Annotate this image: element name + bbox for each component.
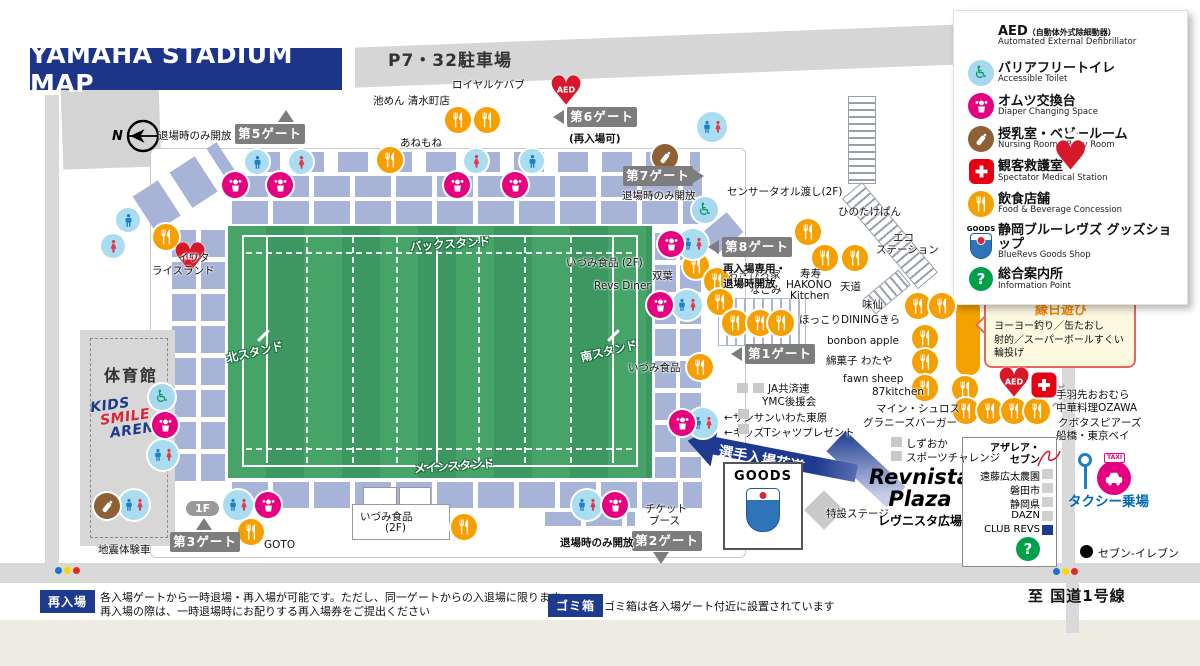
sponsor-square [1042, 497, 1053, 507]
toilet-female-icon [101, 234, 125, 258]
legend-text: 飲食店舗Food & Beverage Concession [998, 193, 1122, 216]
taxi-sign-pole-icon [1084, 463, 1087, 489]
trash-badge: ゴミ箱 [548, 594, 603, 617]
sponsor-row: CLUB REVS [984, 524, 1040, 535]
map-label: しずおか [906, 436, 948, 451]
sponsor-row: 磐田市 [1010, 482, 1040, 497]
food-icon [445, 107, 471, 133]
legend-icon-cell: GOODS [964, 225, 998, 259]
leader-square [737, 383, 748, 393]
legend-en-label: Information Point [998, 282, 1071, 291]
gate-label: 第1ゲート [745, 344, 815, 364]
toilet-icon [572, 490, 602, 520]
signal-dot-blue [55, 567, 62, 574]
ramp-diagonal [842, 182, 938, 289]
diaper-changing-icon [267, 172, 293, 198]
food-icon [912, 349, 938, 375]
ennichi-line: ヨーヨー釣り／缶たおし [994, 320, 1128, 334]
10m-line [352, 237, 354, 463]
gate-arrow-icon [731, 347, 742, 361]
road-left [45, 95, 59, 567]
diaper-changing-icon [669, 410, 695, 436]
5m-line-bottom [246, 448, 632, 450]
nursing-room-icon [968, 126, 994, 152]
legend-text: AED（自動体外式除細動器）Automated External Defibri… [998, 25, 1136, 48]
reentry-note-line2: 再入場の際は、一時退場時にお配りする再入場券をご提出ください [100, 603, 430, 619]
map-label: スポーツチャレンジ [906, 450, 1000, 465]
gate-note: 退場時のみ開放 [158, 128, 232, 143]
map-label: 池めん 清水町店 [373, 93, 450, 108]
food-icon [905, 293, 931, 319]
gate-arrow-icon [196, 518, 212, 530]
22m-line [306, 237, 308, 463]
map-label: bonbon apple [827, 335, 899, 347]
map-label: マイン・シュロス [876, 401, 960, 416]
ennichi-line: 射的／スーパーボールすくい [994, 334, 1128, 348]
signal-dot-blue [1053, 568, 1060, 575]
legend-jp-label: 静岡ブルーレヴズ グッズショップ [998, 224, 1179, 251]
toilet-male-icon [520, 149, 544, 173]
accessible-toilet-icon: ♿ [968, 60, 994, 86]
bottom-strip [0, 620, 1200, 666]
information-point-icon: ? [969, 267, 993, 291]
leader-square [891, 451, 902, 461]
legend-text: 静岡ブルーレヴズ グッズショップBlueRevs Goods Shop [998, 224, 1179, 260]
map-label: ステーション [876, 242, 939, 257]
legend-text: バリアフリートイレAccessible Toilet [998, 62, 1115, 85]
gate-label: 第8ゲート [722, 237, 792, 257]
diaper-changing-icon [658, 231, 684, 257]
gate-label: 第5ゲート [235, 124, 305, 144]
food-icon [687, 354, 713, 380]
sponsor-square [1042, 483, 1053, 493]
10m-line [478, 237, 480, 463]
leader-square [753, 383, 764, 393]
legend-jp-label: AED（自動体外式除細動器） [998, 25, 1136, 39]
map-label: センサータオル渡し(2F) [727, 184, 842, 199]
legend-en-label: BlueRevs Goods Shop [998, 251, 1179, 260]
10m-line [524, 237, 526, 463]
aed-icon: ♥AED [996, 368, 1032, 402]
legend-en-label: Accessible Toilet [998, 75, 1115, 84]
toilet-icon [119, 490, 149, 520]
sponsor-square [1042, 525, 1053, 535]
diaper-changing-icon [222, 172, 248, 198]
taxi-stand-label: タクシー乗場 [1068, 490, 1149, 510]
gate-arrow-icon [278, 110, 294, 122]
legend-jp-label: バリアフリートイレ [998, 62, 1115, 76]
nursing-room-icon [94, 493, 120, 519]
medical-station-icon [969, 159, 994, 184]
diaper-changing-icon [502, 172, 528, 198]
map-label: (2F) [385, 522, 406, 534]
food-icon [842, 245, 868, 271]
toilet-female-icon [464, 149, 488, 173]
10m-line [396, 237, 398, 463]
food-icon [238, 519, 264, 545]
legend-en-label: Diaper Changing Space [998, 108, 1098, 117]
halfway-line [436, 237, 438, 463]
map-label: 綿菓子 わたや [826, 353, 892, 368]
22m-line [570, 237, 572, 463]
signal-dot-yellow [1062, 568, 1069, 575]
toilet-male-icon [245, 150, 269, 174]
floor-pill: 1F [186, 501, 219, 516]
legend-icon-cell: ? [964, 267, 998, 291]
sponsor-row: DAZN [1011, 510, 1040, 521]
food-icon [968, 191, 994, 217]
diaper-changing-icon [152, 412, 178, 438]
leader-square [738, 424, 749, 434]
map-label: グラニーズバーガー [863, 415, 957, 430]
map-label: ほっこりDININGきら [799, 312, 900, 327]
map-label: ブース [649, 513, 680, 528]
map-label: ライスランド [152, 263, 215, 278]
gate-note: 再入場専用・ 退場時開放 [723, 261, 786, 291]
seats-top-row3 [232, 201, 702, 224]
aed-icon: ♥AED [964, 19, 998, 53]
map-label: ロイヤルケバブ [452, 77, 525, 92]
map-label: 天道 [840, 279, 861, 294]
toilet-male-icon [116, 208, 140, 232]
goods-shop-icon: GOODS [967, 225, 996, 259]
map-label: Revs Diner [594, 280, 651, 292]
food-icon [474, 107, 500, 133]
leader-square [738, 409, 749, 419]
map-label: 船橋・東京ベイ [1056, 428, 1130, 443]
gym-label: 体育館 [104, 362, 158, 386]
stairs-topright [848, 96, 876, 184]
legend-jp-label: オムツ交換台 [998, 95, 1098, 109]
seats-bottom-row [232, 482, 702, 508]
goods-shop: GOODS [723, 462, 803, 550]
map-label: 双葉 [652, 268, 673, 283]
legend-item: ♿バリアフリートイレAccessible Toilet [964, 60, 1179, 86]
ennichi-stalls-bar [956, 299, 980, 375]
map-label: 87kitchen [872, 386, 924, 398]
route-1-label: 至 国道1号線 [1028, 585, 1126, 606]
legend-icon-cell [964, 126, 998, 152]
gate-label: 第6ゲート [567, 107, 637, 127]
gate-arrow-icon [708, 240, 719, 254]
diaper-changing-icon [968, 93, 994, 119]
map-label: GOTO [264, 539, 295, 551]
toilet-icon [223, 490, 253, 520]
signal-dot-red [73, 567, 80, 574]
legend-en-label: Food & Beverage Concession [998, 206, 1122, 215]
legend-icon-cell [964, 93, 998, 119]
food-icon [912, 325, 938, 351]
gate-note: (再入場可) [569, 131, 621, 146]
accessible-toilet-icon: ♿ [149, 384, 175, 410]
food-icon [722, 310, 748, 336]
map-label: いづみ食品 [628, 360, 681, 375]
diaper-changing-icon [647, 292, 673, 318]
legend-icon-cell: ♥AED [964, 19, 998, 53]
gate-note: 退場時のみ開放 [560, 535, 634, 550]
map-label: 中華料理OZAWA [1056, 400, 1137, 415]
map-label: 地震体験車 [98, 542, 151, 557]
legend-jp-label: 飲食店舗 [998, 193, 1122, 207]
seven-eleven-label: セブン-イレブン [1098, 545, 1179, 561]
red-scribble-icon [1036, 446, 1062, 470]
toilet-icon [697, 112, 727, 142]
gate-arrow-icon [693, 169, 704, 183]
map-label: YMC後援会 [762, 394, 816, 409]
sponsor-square [1042, 469, 1053, 479]
aed-icon: ♥AED [548, 76, 584, 110]
leader-square [891, 437, 902, 447]
map-label: Kitchen [790, 290, 829, 302]
map-label: ひのたけぱん [838, 204, 901, 219]
food-icon [795, 219, 821, 245]
gate-arrow-icon [553, 110, 564, 124]
legend-card: ♥AEDAED（自動体外式除細動器）Automated External Def… [953, 10, 1188, 305]
compass: N [112, 118, 161, 154]
legend-item: ♥AEDAED（自動体外式除細動器）Automated External Def… [964, 19, 1179, 53]
parking-label: P7・32駐車場 [388, 46, 512, 71]
legend-jp-label: 総合案内所 [998, 268, 1071, 282]
legend-icon-cell [964, 191, 998, 217]
legend-text: オムツ交換台Diaper Changing Space [998, 95, 1098, 118]
map-label: いづみ食品 (2F) [566, 255, 643, 270]
gate-label: 第2ゲート [632, 531, 702, 551]
toilet-female-icon [289, 150, 313, 174]
reentry-badge: 再入場 [40, 590, 95, 613]
map-title: YAMAHA STADIUM MAP [30, 48, 342, 90]
north-arrow-icon [125, 118, 161, 154]
gate-arrow-icon [653, 552, 669, 564]
toilet-icon [148, 440, 178, 470]
legend-text: 総合案内所Information Point [998, 268, 1071, 291]
legend-item: ?総合案内所Information Point [964, 267, 1179, 291]
signal-dot-red [1071, 568, 1078, 575]
legend-item: オムツ交換台Diaper Changing Space [964, 93, 1179, 119]
legend-item: 飲食店舗Food & Beverage Concession [964, 191, 1179, 217]
trash-note: ゴミ箱は各入場ゲート付近に設置されています [604, 598, 835, 614]
legend-item: GOODS静岡ブルーレヴズ グッズショップBlueRevs Goods Shop [964, 224, 1179, 260]
diaper-changing-icon [602, 492, 628, 518]
medical-station-icon [1032, 373, 1057, 398]
sponsor-row: 静岡県 [1010, 496, 1040, 511]
compass-n-label: N [112, 129, 123, 144]
ennichi-line: 輪投げ [994, 347, 1128, 361]
diaper-changing-icon [255, 492, 281, 518]
sponsor-square [1042, 511, 1053, 521]
signal-dot-yellow [64, 567, 71, 574]
legend-icon-cell [964, 159, 998, 184]
stadium-map: P7・32駐車場 体育館 KIDS SMILE ARENA [0, 0, 1200, 666]
diaper-changing-icon [444, 172, 470, 198]
map-label: 味仙 [862, 297, 883, 312]
map-label: あねもね [400, 135, 442, 150]
taxi-flag-label: TAXI [1104, 453, 1125, 463]
toilet-icon [672, 290, 702, 320]
food-icon [377, 147, 403, 173]
gate-label: 第7ゲート [623, 166, 693, 186]
sponsor-row: 遠藤広太農園 [980, 468, 1040, 483]
goods-shop-label: GOODS [734, 469, 792, 484]
legend-en-label: Automated External Defibrillator [998, 38, 1136, 47]
bluerevs-shield-icon [746, 488, 780, 532]
information-point-icon: ? [1016, 537, 1040, 561]
map-label: fawn sheep [843, 373, 903, 385]
gate-note: 退場時のみ開放 [622, 188, 696, 203]
food-icon [929, 293, 955, 319]
legend-icon-cell: ♿ [964, 60, 998, 86]
food-icon [451, 514, 477, 540]
seven-eleven-dot-icon [1080, 545, 1093, 558]
food-icon [768, 310, 794, 336]
gate-label: 第3ゲート [170, 532, 240, 552]
